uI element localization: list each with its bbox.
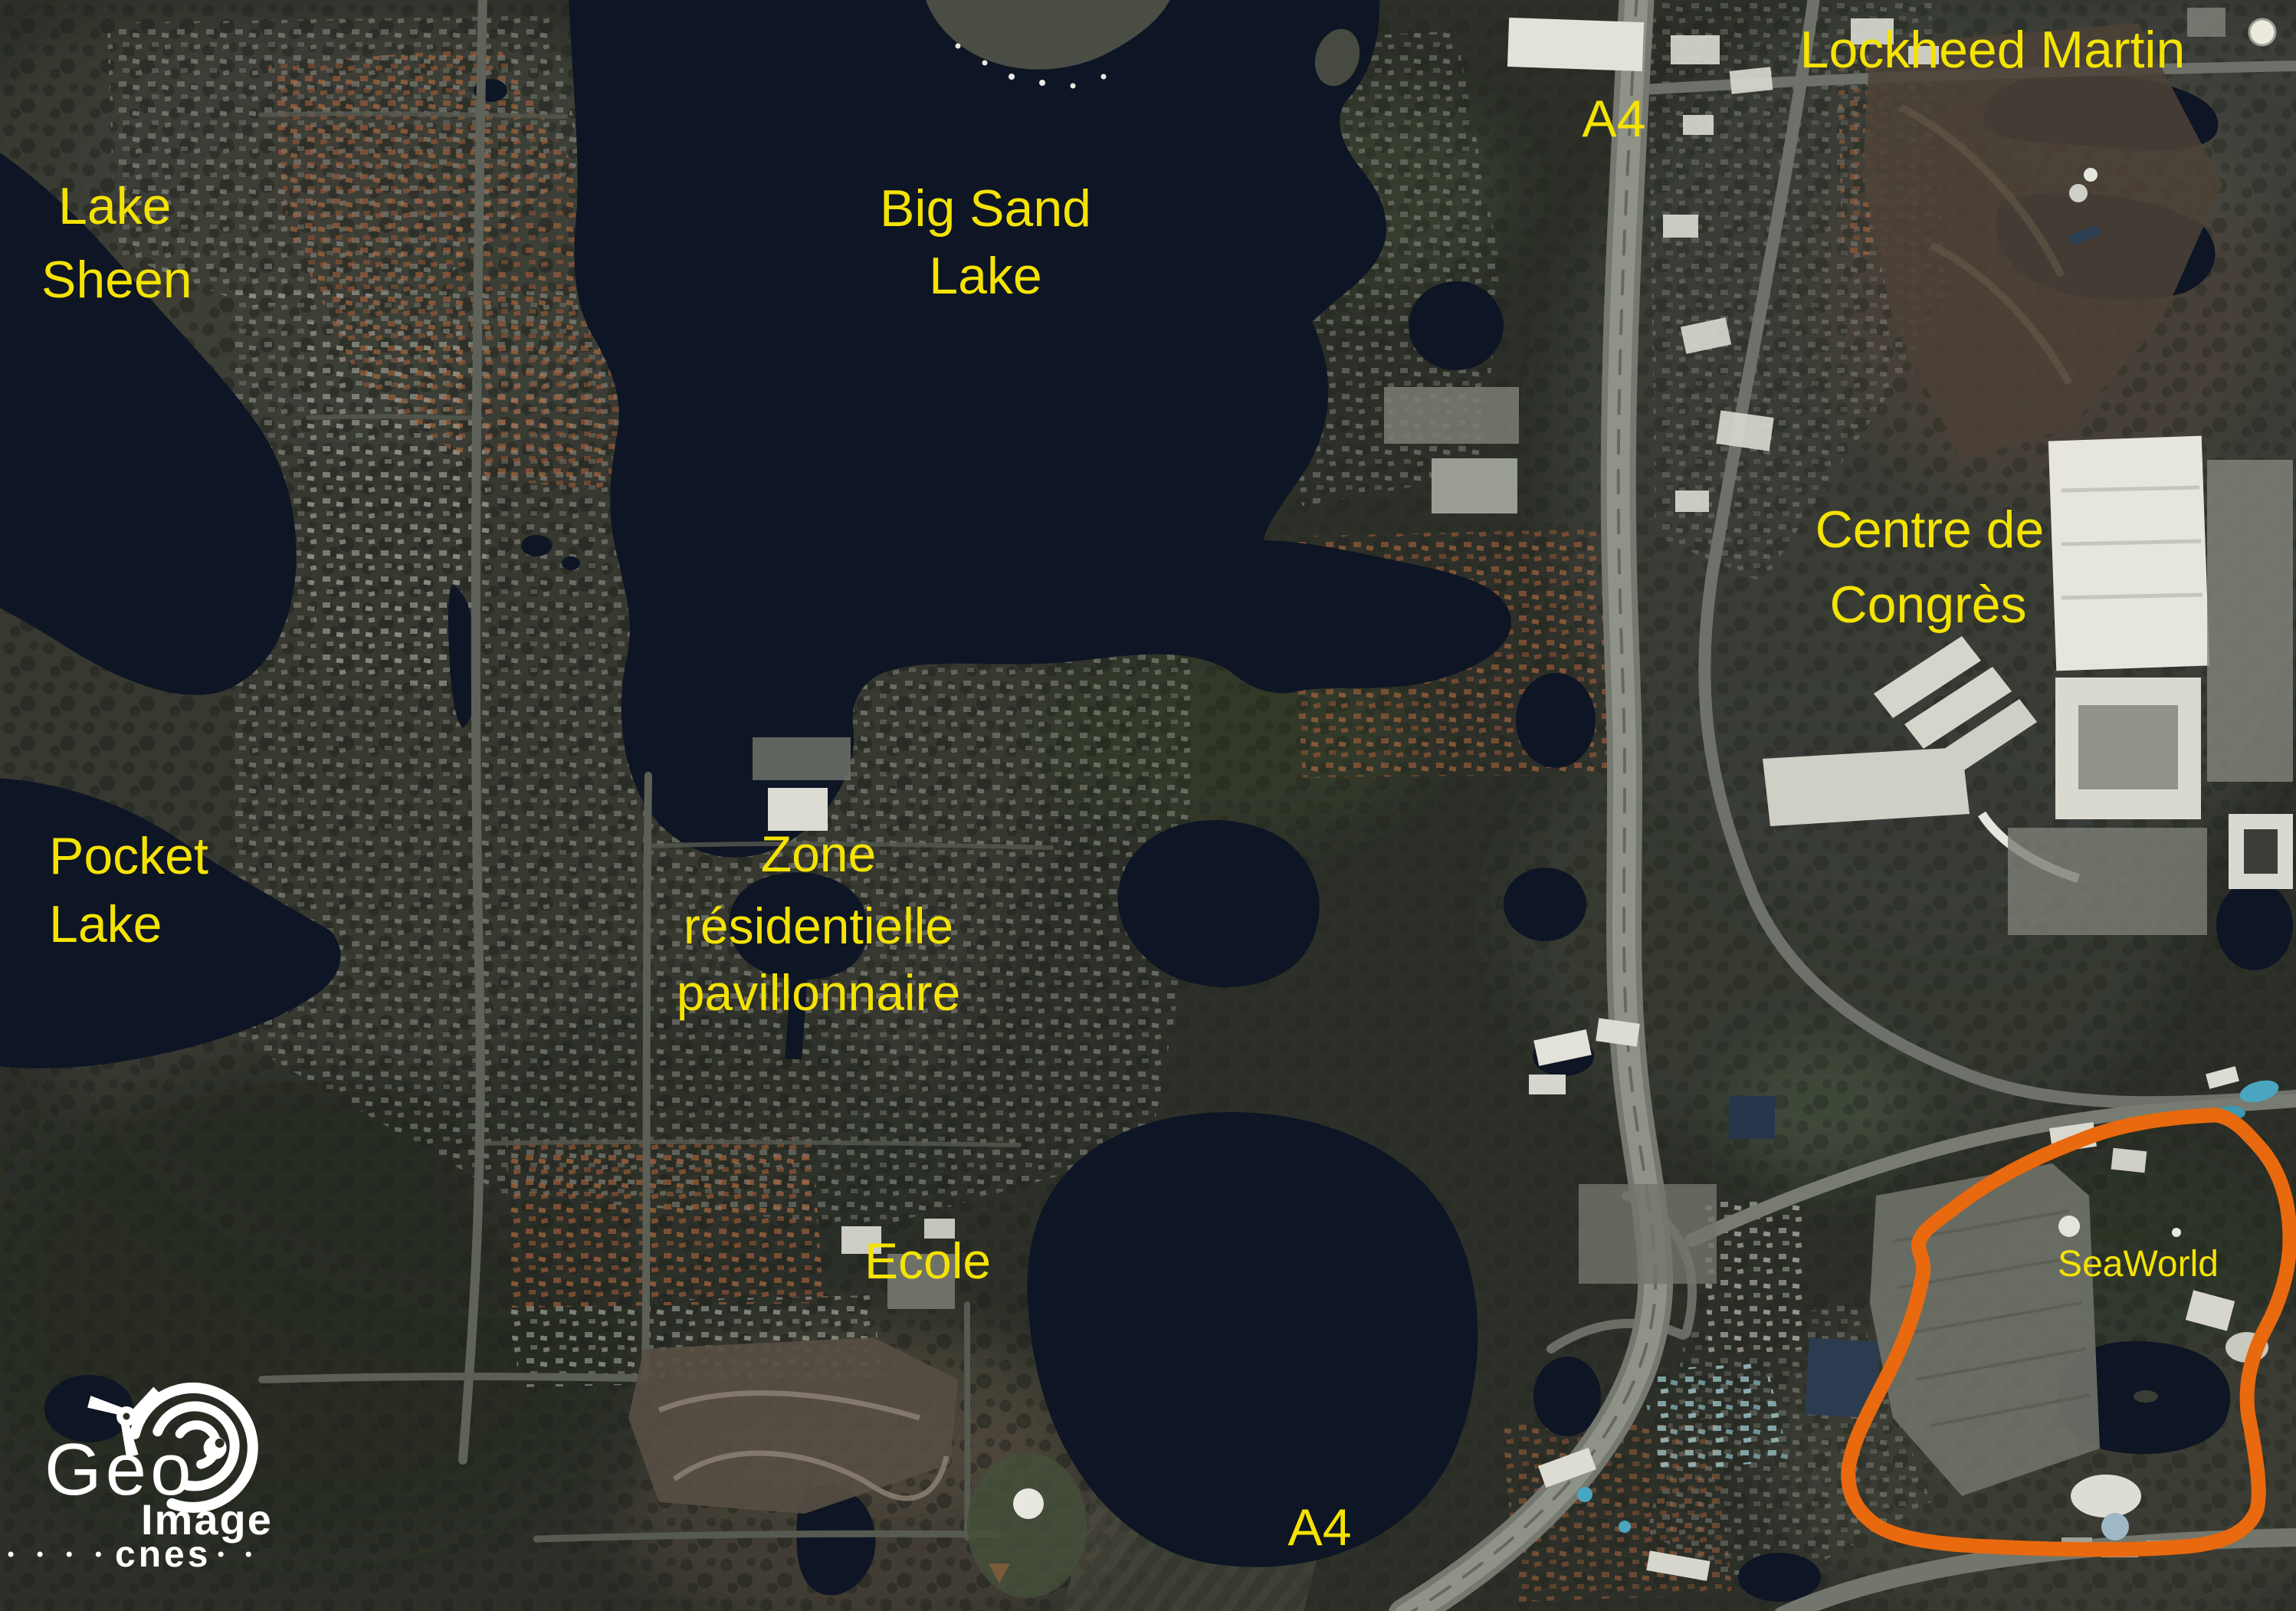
label-zone-line1: Zone [761,825,876,882]
label-seaworld: SeaWorld [2058,1244,2219,1285]
label-centre-congres-line1: Centre de [1815,500,2045,559]
satellite-image: Lake Sheen Big Sand Lake A4 Lockheed Mar… [0,0,2296,1611]
label-a4-bottom: A4 [1287,1498,1351,1557]
label-pocket-lake-line1: Pocket [49,827,208,885]
logo-text-cnes: cnes [115,1534,211,1575]
label-a4-top: A4 [1582,90,1645,148]
label-pocket-lake-line2: Lake [49,895,162,953]
label-ecole: Ecole [864,1232,991,1289]
label-big-sand-line1: Big Sand [880,179,1091,238]
satellite-map-annotated: Lake Sheen Big Sand Lake A4 Lockheed Mar… [0,0,2296,1611]
warehouse-building [1507,18,1644,71]
label-lake-sheen-line2: Sheen [41,251,192,309]
label-centre-congres-line2: Congrès [1829,576,2026,634]
label-zone-line2: résidentielle [684,897,953,954]
label-big-sand-line2: Lake [929,247,1041,305]
label-lockheed-martin: Lockheed Martin [1800,21,2186,79]
label-lake-sheen-line1: Lake [58,177,171,235]
label-zone-line3: pavillonnaire [677,964,961,1021]
water-tank [2249,19,2275,45]
